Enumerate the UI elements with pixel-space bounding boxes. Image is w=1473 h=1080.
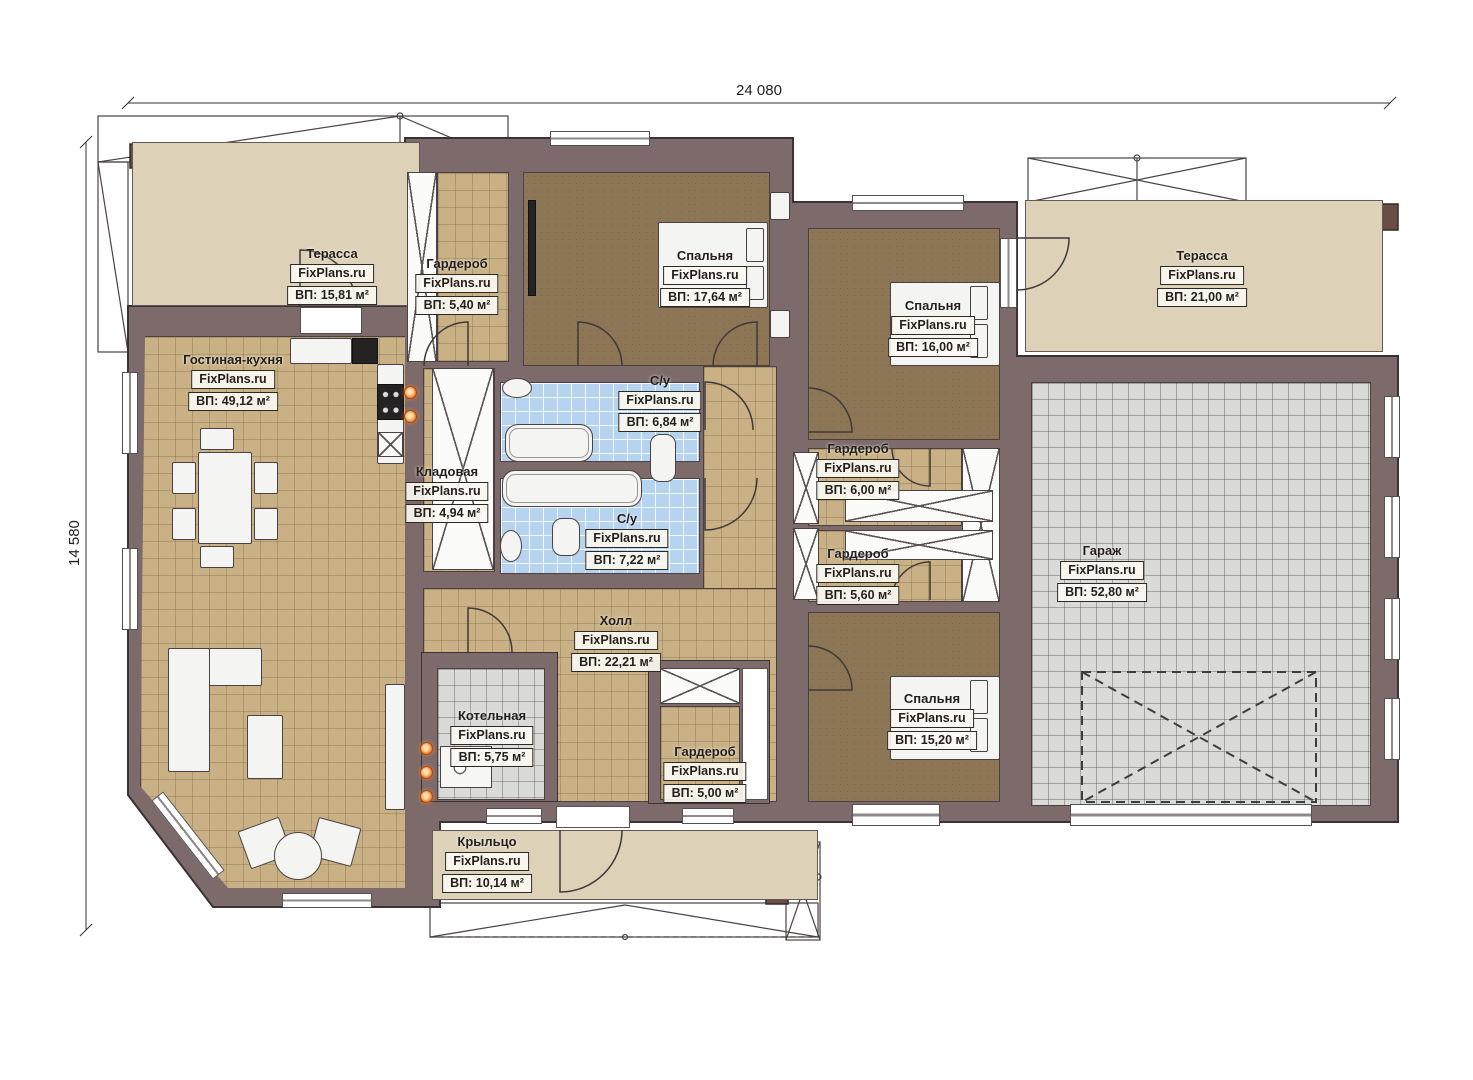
room-area: ВП: 5,75 м² — [451, 748, 534, 767]
room-name: С/у — [617, 511, 637, 526]
room-area: ВП: 7,22 м² — [586, 551, 669, 570]
room-name: Кладовая — [416, 464, 478, 479]
brand-watermark: FixPlans.ru — [891, 316, 974, 335]
room-label-porch: Крыльцо FixPlans.ru ВП: 10,14 м² — [442, 834, 532, 893]
brand-watermark: FixPlans.ru — [405, 482, 488, 501]
room-name: Гардероб — [827, 441, 888, 456]
room-area: ВП: 49,12 м² — [188, 392, 278, 411]
gas-flame-icon — [420, 742, 433, 755]
brand-watermark: FixPlans.ru — [574, 631, 657, 650]
brand-watermark: FixPlans.ru — [618, 391, 701, 410]
room-name: С/у — [650, 373, 670, 388]
gas-flame-icon — [404, 410, 417, 423]
room-area: ВП: 21,00 м² — [1157, 288, 1247, 307]
room-label-terrace-right: Терасса FixPlans.ru ВП: 21,00 м² — [1157, 248, 1247, 307]
room-area: ВП: 15,81 м² — [287, 286, 377, 305]
room-name: Крыльцо — [457, 834, 516, 849]
dimension-width: 24 080 — [736, 82, 782, 99]
dimension-height: 14 580 — [66, 520, 83, 566]
brand-watermark: FixPlans.ru — [1160, 266, 1243, 285]
room-area: ВП: 6,84 м² — [619, 413, 702, 432]
brand-watermark: FixPlans.ru — [290, 264, 373, 283]
room-label-garage: Гараж FixPlans.ru ВП: 52,80 м² — [1057, 543, 1147, 602]
room-label-bedroom-1: Спальня FixPlans.ru ВП: 17,64 м² — [660, 248, 750, 307]
brand-watermark: FixPlans.ru — [450, 726, 533, 745]
room-label-living-kitchen: Гостиная-кухня FixPlans.ru ВП: 49,12 м² — [183, 352, 283, 411]
room-label-terrace-left: Терасса FixPlans.ru ВП: 15,81 м² — [287, 246, 377, 305]
room-area: ВП: 5,00 м² — [664, 784, 747, 803]
brand-watermark: FixPlans.ru — [890, 709, 973, 728]
room-label-wardrobe-r1: Гардероб FixPlans.ru ВП: 6,00 м² — [816, 441, 899, 500]
room-area: ВП: 15,20 м² — [887, 731, 977, 750]
room-area: ВП: 6,00 м² — [817, 481, 900, 500]
room-name: Терасса — [1176, 248, 1228, 263]
room-name: Холл — [600, 613, 633, 628]
room-label-wardrobe-r2: Гардероб FixPlans.ru ВП: 5,60 м² — [816, 546, 899, 605]
brand-watermark: FixPlans.ru — [585, 529, 668, 548]
room-label-hall: Холл FixPlans.ru ВП: 22,21 м² — [571, 613, 661, 672]
room-area: ВП: 52,80 м² — [1057, 583, 1147, 602]
plan-overlay-drawing — [0, 0, 1473, 1080]
floor-plan-canvas: 24 080 14 580 Терасса FixPlans.ru ВП: 15… — [0, 0, 1473, 1080]
brand-watermark: FixPlans.ru — [415, 274, 498, 293]
room-name: Гардероб — [426, 256, 487, 271]
room-name: Спальня — [677, 248, 733, 263]
room-area: ВП: 17,64 м² — [660, 288, 750, 307]
room-area: ВП: 5,40 м² — [416, 296, 499, 315]
room-name: Терасса — [306, 246, 358, 261]
room-area: ВП: 16,00 м² — [888, 338, 978, 357]
brand-watermark: FixPlans.ru — [816, 564, 899, 583]
room-name: Гардероб — [827, 546, 888, 561]
room-label-boiler: Котельная FixPlans.ru ВП: 5,75 м² — [450, 708, 533, 767]
room-label-bedroom-2: Спальня FixPlans.ru ВП: 16,00 м² — [888, 298, 978, 357]
room-name: Гостиная-кухня — [183, 352, 283, 367]
brand-watermark: FixPlans.ru — [445, 852, 528, 871]
room-label-bath-2: С/у FixPlans.ru ВП: 7,22 м² — [585, 511, 668, 570]
garage-parking-marking — [1082, 672, 1316, 802]
room-name: Спальня — [904, 691, 960, 706]
room-label-pantry: Кладовая FixPlans.ru ВП: 4,94 м² — [405, 464, 488, 523]
room-area: ВП: 22,21 м² — [571, 653, 661, 672]
gas-flame-icon — [420, 790, 433, 803]
gas-flame-icon — [404, 386, 417, 399]
room-area: ВП: 10,14 м² — [442, 874, 532, 893]
room-name: Котельная — [458, 708, 526, 723]
brand-watermark: FixPlans.ru — [191, 370, 274, 389]
room-label-wardrobe-top: Гардероб FixPlans.ru ВП: 5,40 м² — [415, 256, 498, 315]
brand-watermark: FixPlans.ru — [816, 459, 899, 478]
brand-watermark: FixPlans.ru — [663, 266, 746, 285]
room-name: Гараж — [1083, 543, 1122, 558]
room-name: Гардероб — [674, 744, 735, 759]
room-area: ВП: 5,60 м² — [817, 586, 900, 605]
gas-flame-icon — [420, 766, 433, 779]
room-label-bedroom-3: Спальня FixPlans.ru ВП: 15,20 м² — [887, 691, 977, 750]
room-label-bath-1: С/у FixPlans.ru ВП: 6,84 м² — [618, 373, 701, 432]
brand-watermark: FixPlans.ru — [663, 762, 746, 781]
room-area: ВП: 4,94 м² — [406, 504, 489, 523]
room-name: Спальня — [905, 298, 961, 313]
room-label-wardrobe-hall: Гардероб FixPlans.ru ВП: 5,00 м² — [663, 744, 746, 803]
brand-watermark: FixPlans.ru — [1060, 561, 1143, 580]
